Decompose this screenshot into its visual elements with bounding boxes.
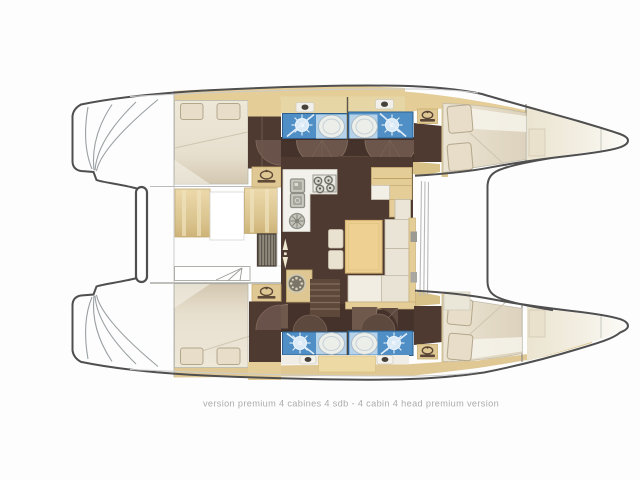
- svg-text:version premium 4 cabines 4 sd: version premium 4 cabines 4 sdb - 4 cabi…: [203, 399, 499, 409]
